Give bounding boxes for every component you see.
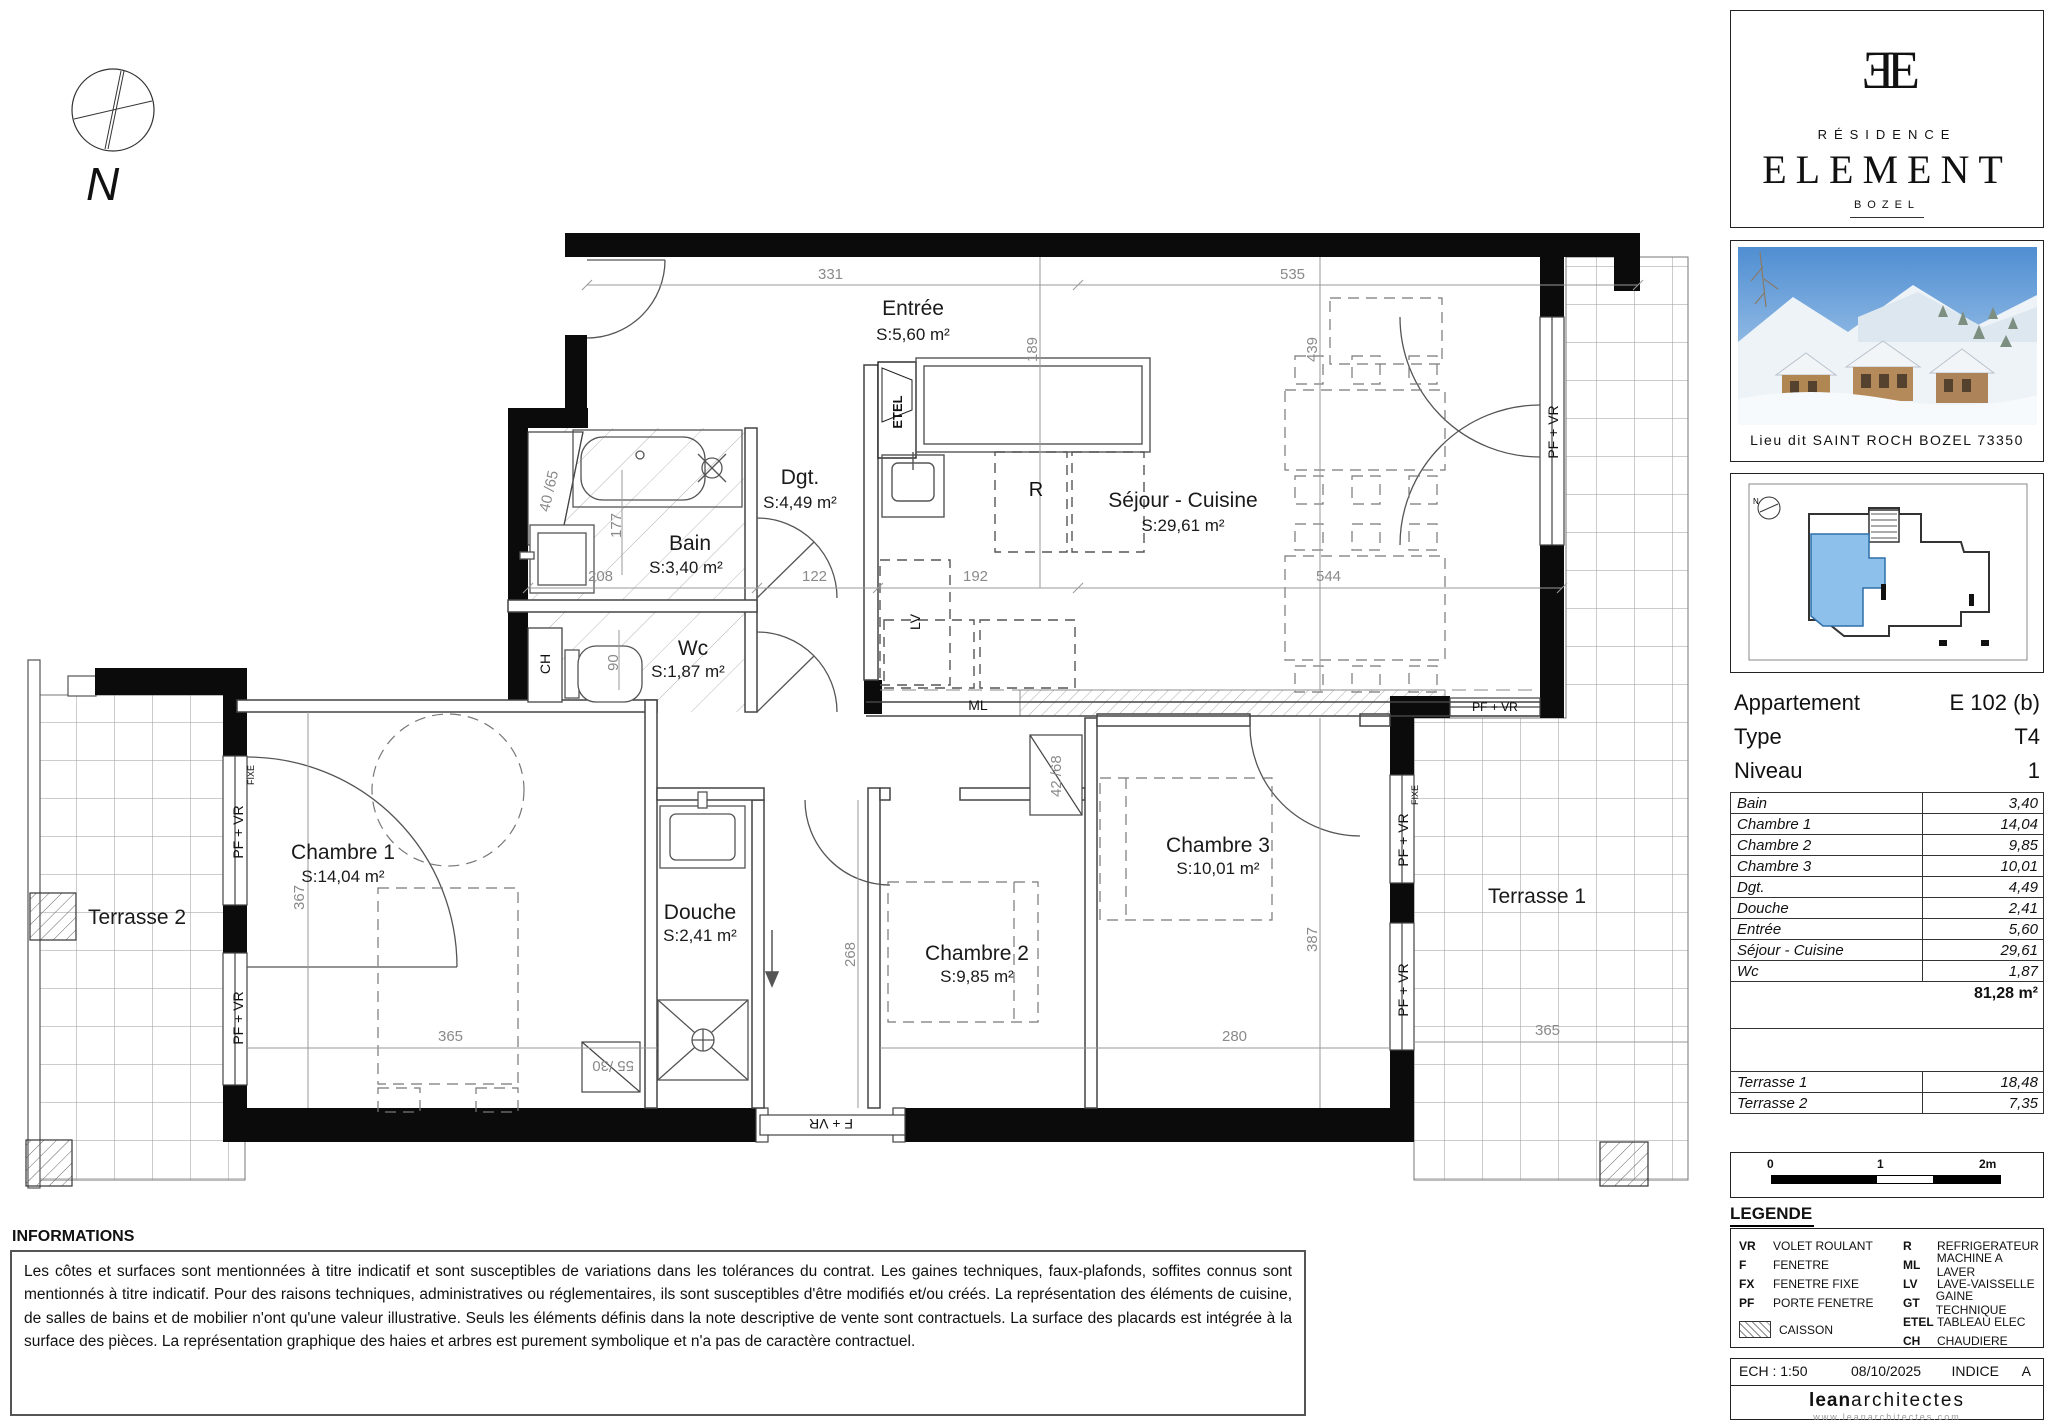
dim-268: 268	[842, 942, 859, 967]
total-row: 81,28 m²	[1731, 982, 2043, 1029]
room-area-bain: S:3,40 m²	[649, 558, 723, 577]
dim-192: 192	[963, 568, 988, 585]
photo-card: Lieu dit SAINT ROCH BOZEL 73350	[1730, 240, 2044, 462]
table-row: Chambre 310,01	[1731, 856, 2043, 877]
room-label-wc: Wc	[678, 637, 708, 660]
table-row: Terrasse 118,48	[1731, 1071, 2043, 1093]
dim-535: 535	[1280, 266, 1305, 283]
architect-website: www.leanarchitectes.com	[1731, 1412, 2043, 1422]
label-pfvr-sejour-east: PF + VR	[1545, 405, 1561, 458]
brand-monogram: ƎE	[1731, 39, 2043, 101]
label-fvr-south-door: F + VR	[809, 1116, 853, 1132]
scale-0: 0	[1767, 1157, 1774, 1171]
logo-card: ƎE RÉSIDENCE ELEMENT BOZEL	[1730, 10, 2044, 228]
dim-280: 280	[1222, 1028, 1247, 1045]
apartment-label: Appartement	[1734, 690, 1860, 716]
table-row: Séjour - Cuisine29,61	[1731, 940, 2043, 961]
legend-box: VRVOLET ROULANT FFENETRE FXFENETRE FIXE …	[1730, 1228, 2044, 1348]
toilet	[565, 646, 642, 702]
informations-body: Les côtes et surfaces sont mentionnées à…	[10, 1250, 1306, 1416]
room-area-ch3: S:10,01 m²	[1176, 859, 1259, 878]
brand-residence: RÉSIDENCE	[1731, 127, 2043, 142]
informations-title: INFORMATIONS	[12, 1228, 134, 1246]
svg-text:N: N	[1753, 497, 1759, 506]
dim-208: 208	[588, 568, 613, 585]
photo-caption: Lieu dit SAINT ROCH BOZEL 73350	[1731, 425, 2043, 448]
room-label-ch2: Chambre 2	[925, 942, 1029, 965]
label-refrigerator: R	[1029, 479, 1043, 501]
scale-bar-graphic	[1771, 1175, 2001, 1184]
table-row: Entrée5,60	[1731, 919, 2043, 940]
room-area-sejour: S:29,61 m²	[1141, 516, 1224, 535]
dim-55-30: 55 /30	[592, 1057, 634, 1074]
level-value: 1	[2028, 758, 2040, 784]
dim-365-ch1: 365	[438, 1028, 463, 1045]
room-area-wc: S:1,87 m²	[651, 662, 725, 681]
legend-col-right: RREFRIGERATEUR MLMACHINE A LAVER LVLAVE-…	[1903, 1236, 2043, 1350]
scale-2m: 2m	[1979, 1157, 1996, 1171]
brand-name: ELEMENT	[1731, 146, 2043, 193]
label-ch: CH	[537, 654, 553, 674]
level-row: Niveau 1	[1734, 758, 2040, 784]
label-pfvr-left-1: PF + VR	[230, 805, 246, 858]
room-label-sejour: Séjour - Cuisine	[1108, 489, 1257, 512]
areas-table: Bain3,40 Chambre 114,04 Chambre 29,85 Ch…	[1730, 792, 2044, 1114]
type-label: Type	[1734, 724, 1782, 750]
type-row: Type T4	[1734, 724, 2040, 750]
table-row: Douche2,41	[1731, 898, 2043, 919]
label-pfvr-right-1: PF + VR	[1395, 813, 1411, 866]
label-ml: ML	[968, 697, 988, 713]
scale-text: ECH : 1:50	[1739, 1363, 1807, 1379]
table-row: Chambre 114,04	[1731, 814, 2043, 835]
floorplan-sheet: { "plan": { "rooms": { "entree":{"name":…	[0, 0, 2048, 1427]
dim-544: 544	[1316, 568, 1341, 585]
table-row: Dgt.4,49	[1731, 877, 2043, 898]
table-row: Bain3,40	[1731, 793, 2043, 814]
room-label-douche: Douche	[664, 901, 736, 924]
legend-title: LEGENDE	[1730, 1204, 1814, 1227]
room-label-entree: Entrée	[882, 297, 944, 320]
dim-42-68: 42 /68	[1048, 755, 1065, 797]
room-label-t2: Terrasse 2	[88, 906, 186, 929]
label-pfvr-left-2: PF + VR	[230, 991, 246, 1044]
north-arrow-icon: N	[72, 69, 154, 210]
table-row: Wc1,87	[1731, 961, 2043, 982]
dim-90: 90	[605, 654, 622, 671]
room-label-t1: Terrasse 1	[1488, 885, 1586, 908]
room-area-ch1: S:14,04 m²	[301, 867, 384, 886]
brand-city: BOZEL	[1850, 199, 1924, 218]
table-row: Chambre 29,85	[1731, 835, 2043, 856]
legend-col-left: VRVOLET ROULANT FFENETRE FXFENETRE FIXE …	[1739, 1236, 1873, 1312]
floor-plan: N	[0, 0, 1700, 1427]
room-label-dgt: Dgt.	[781, 466, 820, 489]
indice-value: A	[2022, 1363, 2031, 1379]
architect-name: leanarchitectes	[1731, 1386, 2043, 1412]
dim-189: 189	[1024, 337, 1041, 362]
scale-bar: 0 1 2m	[1730, 1152, 2044, 1198]
interior-walls	[237, 365, 1540, 1108]
room-label-ch3: Chambre 3	[1166, 834, 1270, 857]
table-row: Terrasse 27,35	[1731, 1093, 2043, 1113]
locator-north-icon: N	[1753, 497, 1780, 519]
total-area: 81,28 m²	[1974, 982, 2043, 1028]
indice-label: INDICE	[1952, 1363, 1999, 1379]
label-pfvr-sejour-south: PF + VR	[1472, 700, 1518, 714]
north-label: N	[86, 158, 120, 210]
scale-1: 1	[1877, 1157, 1884, 1171]
residence-photo	[1738, 247, 2037, 425]
legend-caisson: CAISSON	[1739, 1321, 1833, 1338]
type-value: T4	[2014, 724, 2040, 750]
dim-365-t1: 365	[1535, 1022, 1560, 1039]
room-area-ch2: S:9,85 m²	[940, 967, 1014, 986]
locator-plan: N	[1731, 474, 2042, 670]
dim-387: 387	[1304, 927, 1321, 952]
label-pfvr-right-2: PF + VR	[1395, 963, 1411, 1016]
caisson-swatch-icon	[1739, 1321, 1771, 1338]
room-area-entree: S:5,60 m²	[876, 325, 950, 344]
dim-331: 331	[818, 266, 843, 283]
level-label: Niveau	[1734, 758, 1802, 784]
room-area-dgt: S:4,49 m²	[763, 493, 837, 512]
bedroom-furniture	[372, 714, 1272, 1112]
label-fixe-right: FIXE	[1410, 785, 1420, 805]
dim-439: 439	[1304, 337, 1321, 362]
label-lv: LV	[907, 613, 923, 630]
date-text: 08/10/2025	[1851, 1363, 1921, 1379]
kitchen	[878, 358, 1150, 688]
room-label-bain: Bain	[669, 532, 711, 555]
dim-367: 367	[291, 885, 308, 910]
room-area-douche: S:2,41 m²	[663, 926, 737, 945]
hall-arrow-icon	[766, 930, 778, 986]
apartment-row: Appartement E 102 (b)	[1734, 690, 2040, 716]
label-fixe-left: FIXE	[246, 765, 256, 785]
dim-177: 177	[608, 513, 625, 538]
dim-122: 122	[802, 568, 827, 585]
caisson-hatch	[1020, 690, 1445, 716]
caisson-label: CAISSON	[1779, 1323, 1833, 1337]
apartment-value: E 102 (b)	[1950, 690, 2041, 716]
locator-card: N	[1730, 473, 2044, 673]
bath-sink	[520, 525, 594, 593]
label-etel: ETEL	[890, 395, 905, 428]
room-label-ch1: Chambre 1	[291, 841, 395, 864]
title-block: ECH : 1:50 08/10/2025 INDICE A leanarchi…	[1730, 1358, 2044, 1420]
